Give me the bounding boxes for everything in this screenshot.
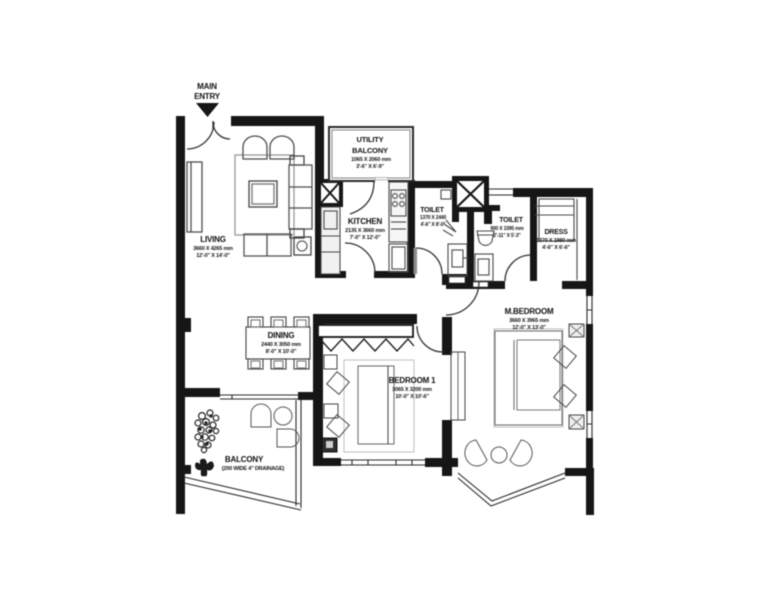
svg-text:1370 X 1980 mm: 1370 X 1980 mm (536, 238, 576, 244)
svg-text:10'-0" X 10'-6": 10'-0" X 10'-6" (395, 394, 429, 400)
svg-text:3660 X 4265 mm: 3660 X 4265 mm (193, 246, 233, 252)
svg-text:900 X 1595 mm: 900 X 1595 mm (490, 226, 524, 232)
svg-text:2135 X 3660 mm: 2135 X 3660 mm (345, 228, 385, 234)
svg-text:UTILITY: UTILITY (357, 135, 384, 144)
svg-text:TOILET: TOILET (420, 207, 444, 214)
svg-text:BEDROOM 1: BEDROOM 1 (389, 376, 436, 385)
svg-text:1065 X 2060 mm: 1065 X 2060 mm (351, 157, 391, 163)
svg-text:8'-0" X 10'-0": 8'-0" X 10'-0" (266, 349, 297, 355)
svg-text:3660 X 3965 mm: 3660 X 3965 mm (509, 318, 549, 324)
svg-text:(200 WIDE 4" DRAINAGE): (200 WIDE 4" DRAINAGE) (222, 466, 285, 472)
svg-text:BALCONY: BALCONY (352, 146, 388, 155)
svg-text:2'-11" X 5'-3": 2'-11" X 5'-3" (493, 233, 521, 239)
svg-text:MAIN: MAIN (197, 82, 217, 91)
svg-text:LIVING: LIVING (200, 235, 225, 244)
svg-text:4'-6" X 8'-0": 4'-6" X 8'-0" (420, 222, 446, 228)
svg-text:TOILET: TOILET (499, 217, 523, 224)
svg-text:KITCHEN: KITCHEN (348, 217, 383, 226)
svg-text:2440 X 3050 mm: 2440 X 3050 mm (261, 342, 301, 348)
svg-text:DINING: DINING (268, 331, 295, 340)
svg-text:4'-6" X 6'-6": 4'-6" X 6'-6" (542, 245, 570, 251)
svg-text:BALCONY: BALCONY (225, 455, 264, 464)
svg-text:7'-0" X 12'-0": 7'-0" X 12'-0" (350, 235, 381, 241)
svg-text:ENTRY: ENTRY (194, 92, 221, 101)
svg-text:12'-0" X 13'-0": 12'-0" X 13'-0" (512, 325, 546, 331)
svg-text:1370 X 2440: 1370 X 2440 (420, 215, 447, 221)
svg-text:12'-0" X 14'-0": 12'-0" X 14'-0" (196, 253, 230, 259)
svg-text:DRESS: DRESS (544, 229, 568, 236)
svg-text:3'-6" X 6'-9": 3'-6" X 6'-9" (356, 164, 384, 170)
svg-text:3065 X 3200 mm: 3065 X 3200 mm (392, 387, 432, 393)
svg-text:M.BEDROOM: M.BEDROOM (505, 307, 554, 316)
